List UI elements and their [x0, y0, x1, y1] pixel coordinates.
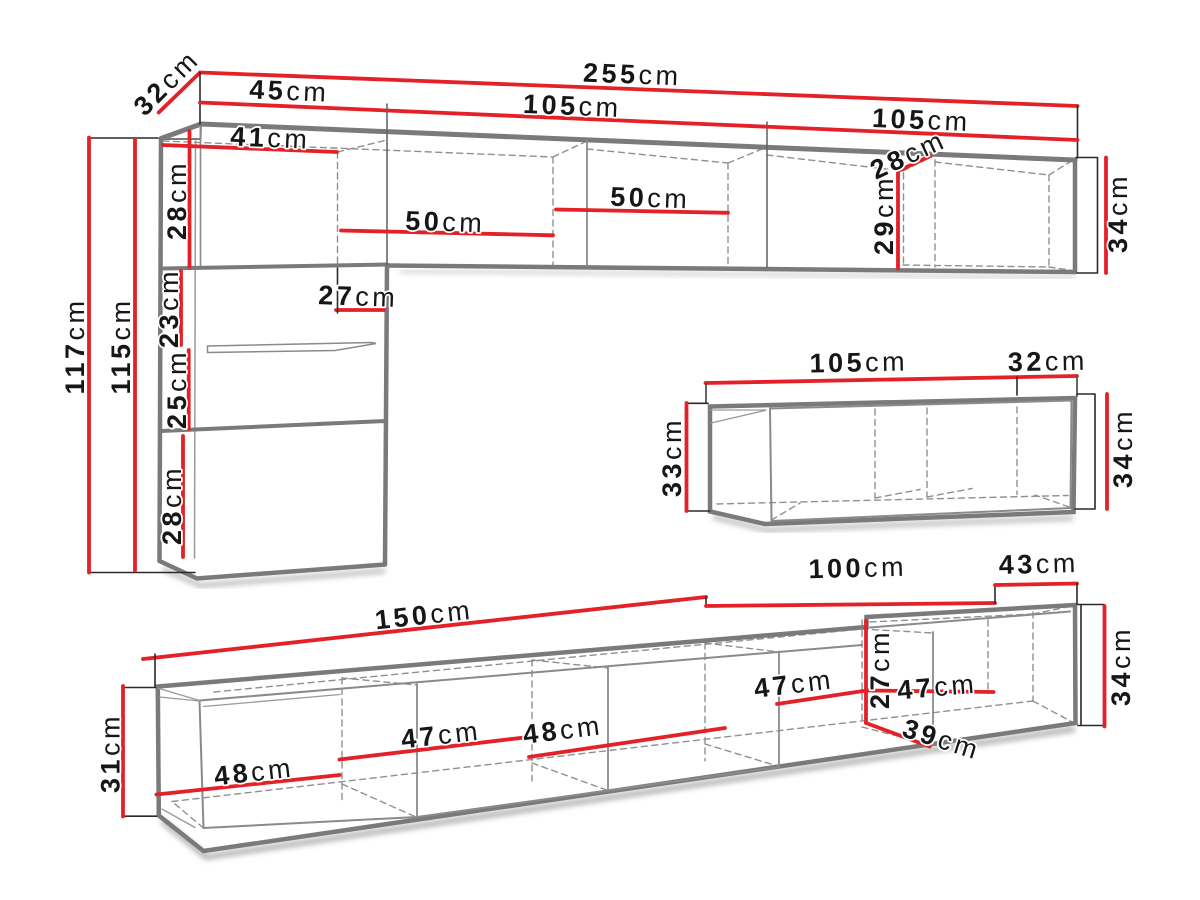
- svg-text:33cm: 33cm: [657, 417, 687, 497]
- svg-text:28cm: 28cm: [162, 160, 192, 240]
- svg-text:105cm: 105cm: [809, 347, 908, 379]
- svg-text:27cm: 27cm: [865, 629, 895, 709]
- svg-text:255cm: 255cm: [583, 58, 683, 92]
- svg-text:31cm: 31cm: [96, 713, 126, 793]
- svg-text:41cm: 41cm: [230, 121, 311, 154]
- svg-text:117cm: 117cm: [60, 297, 90, 394]
- svg-text:43cm: 43cm: [998, 548, 1079, 580]
- svg-text:34cm: 34cm: [1108, 408, 1138, 488]
- svg-text:32cm: 32cm: [1008, 346, 1089, 378]
- svg-text:105cm: 105cm: [523, 89, 623, 123]
- svg-text:50cm: 50cm: [610, 182, 691, 215]
- svg-text:50cm: 50cm: [405, 206, 486, 239]
- svg-text:28cm: 28cm: [157, 465, 187, 545]
- svg-text:27cm: 27cm: [318, 280, 399, 313]
- svg-text:100cm: 100cm: [808, 552, 907, 585]
- svg-text:29cm: 29cm: [869, 175, 899, 255]
- svg-text:23cm: 23cm: [154, 268, 184, 348]
- svg-text:115cm: 115cm: [106, 297, 136, 394]
- svg-text:34cm: 34cm: [1103, 173, 1133, 253]
- svg-text:25cm: 25cm: [162, 349, 192, 429]
- svg-text:45cm: 45cm: [249, 74, 330, 107]
- svg-text:34cm: 34cm: [1106, 626, 1136, 706]
